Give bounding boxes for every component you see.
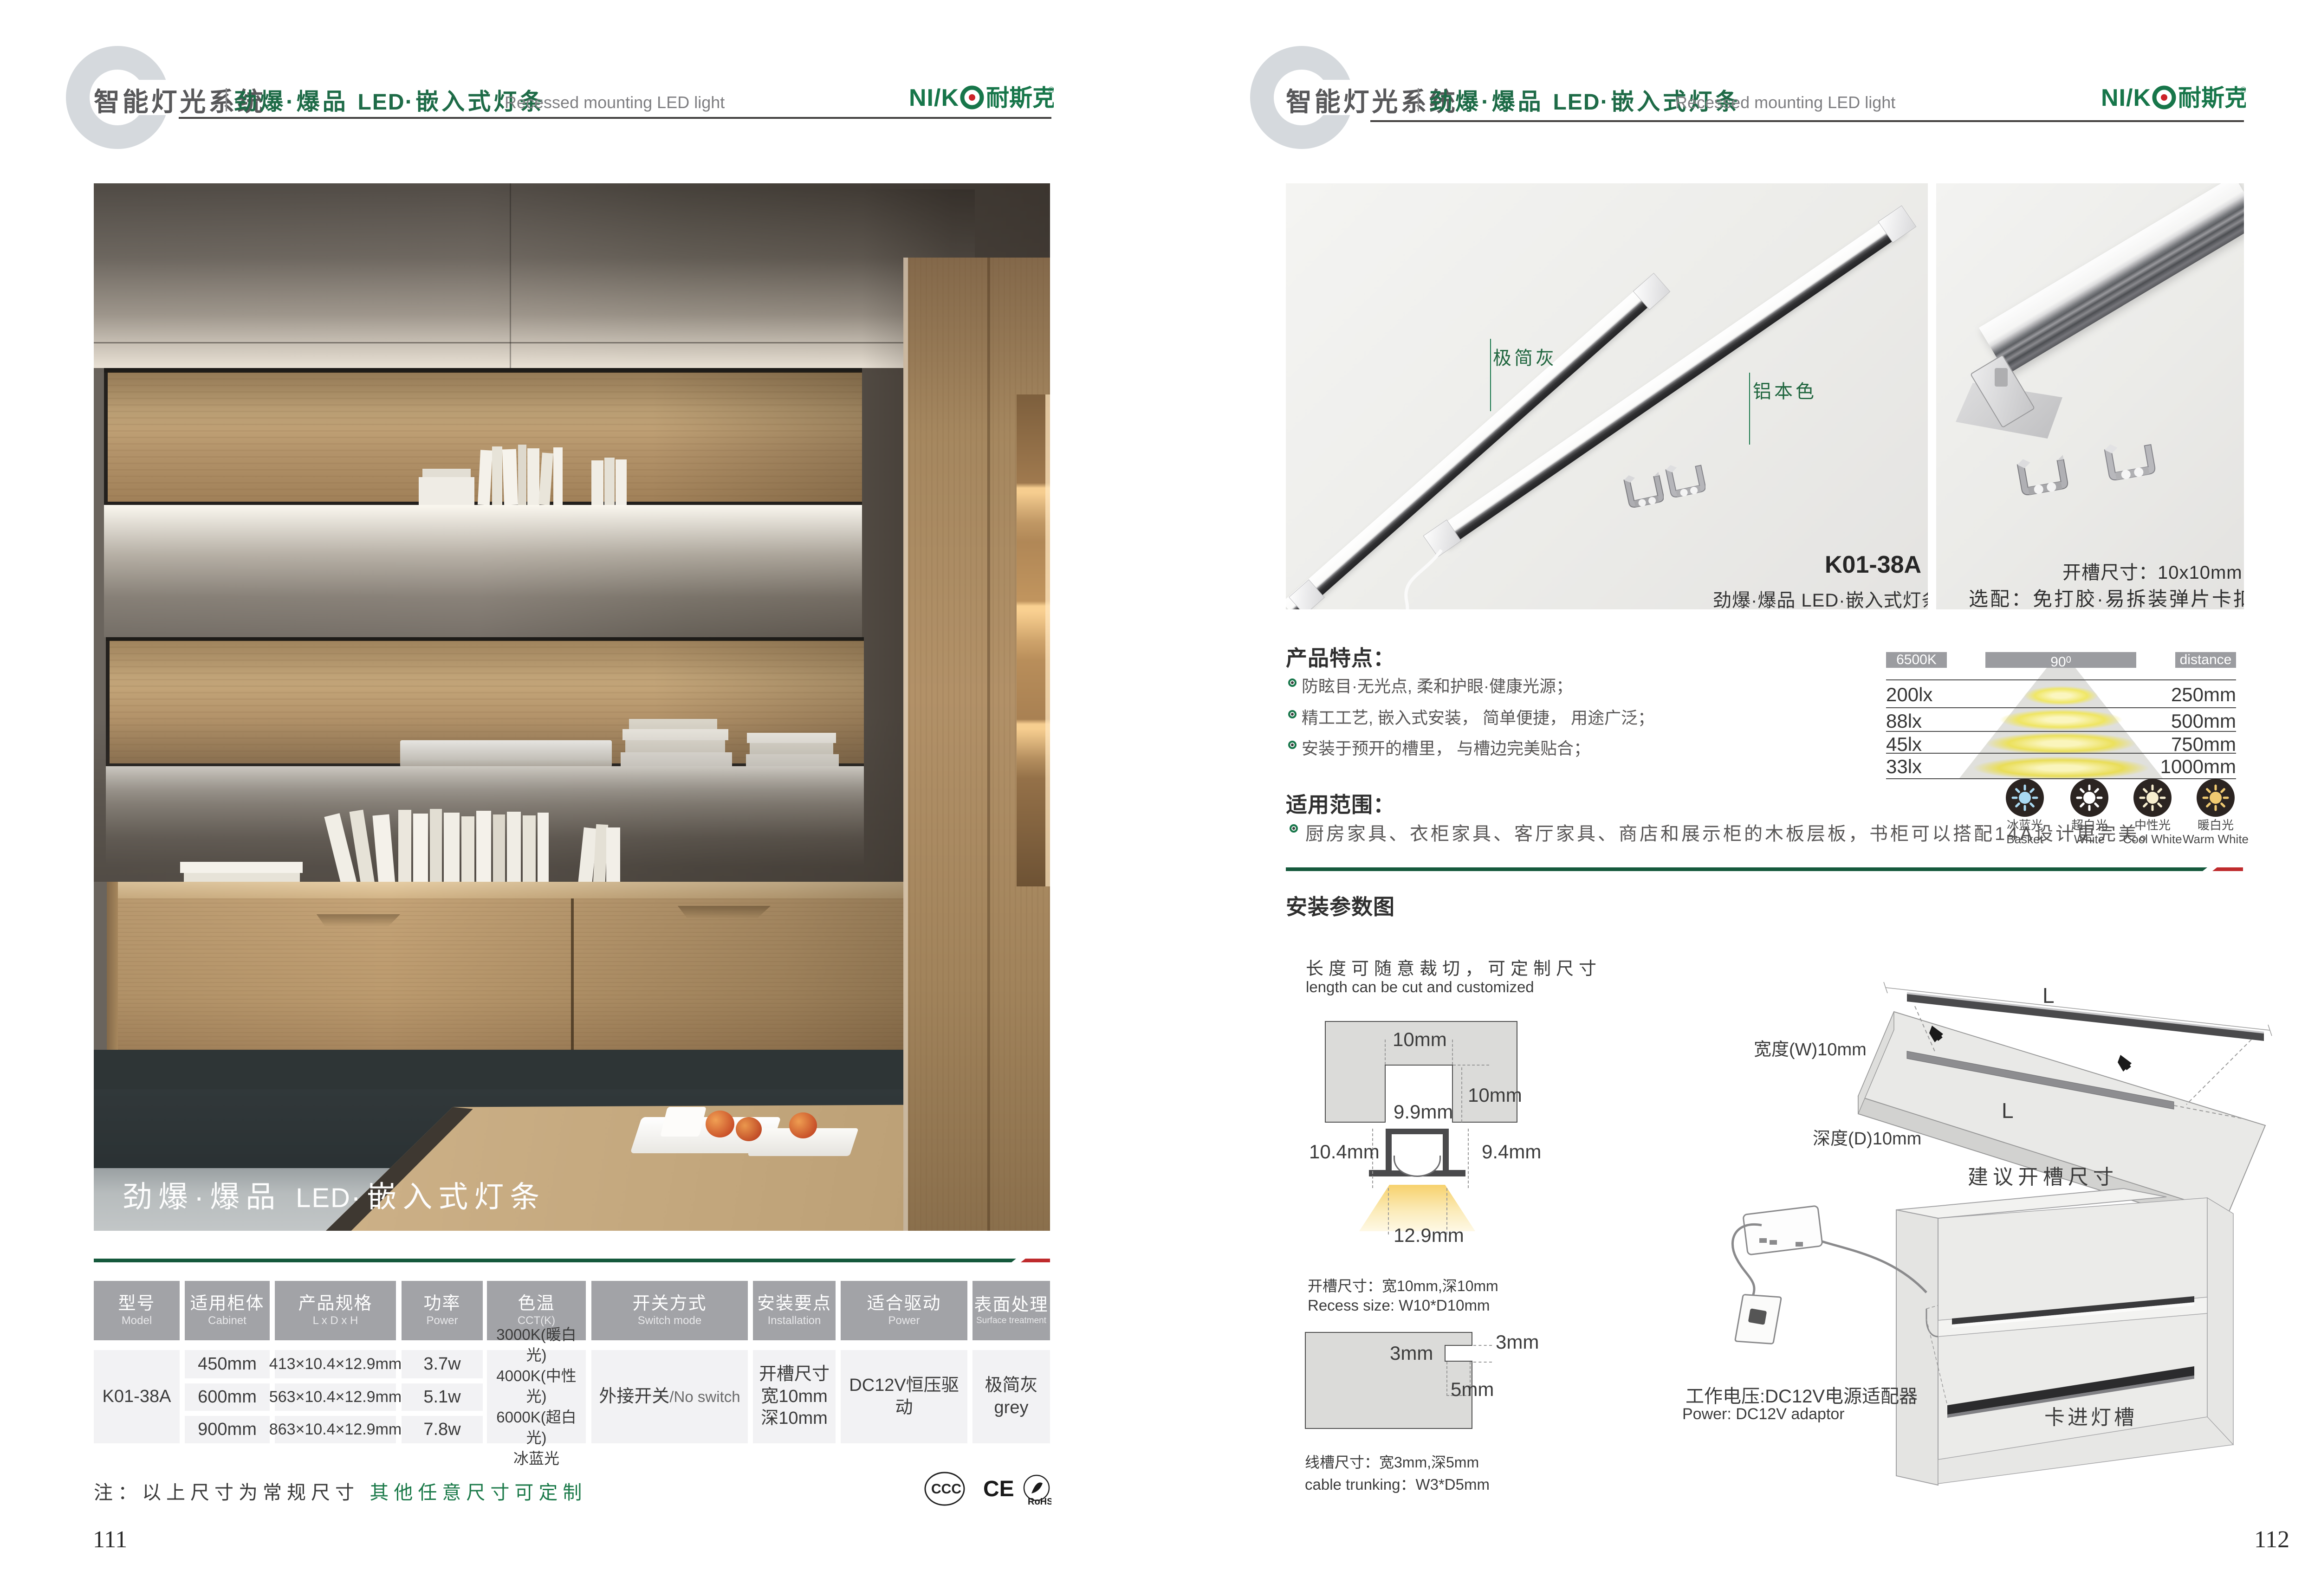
svg-text:®: ® [2240, 85, 2246, 95]
svg-text:NI/K: NI/K [909, 85, 959, 110]
svg-text:耐斯克: 耐斯克 [2178, 85, 2246, 110]
svg-text:NI/K: NI/K [2101, 85, 2151, 110]
svg-text:CE: CE [983, 1477, 1014, 1501]
svg-text:®: ® [1048, 85, 1054, 95]
svg-text:RoHS: RoHS [1028, 1497, 1051, 1507]
svg-text:CCC: CCC [931, 1481, 961, 1497]
svg-text:耐斯克: 耐斯克 [986, 85, 1054, 110]
